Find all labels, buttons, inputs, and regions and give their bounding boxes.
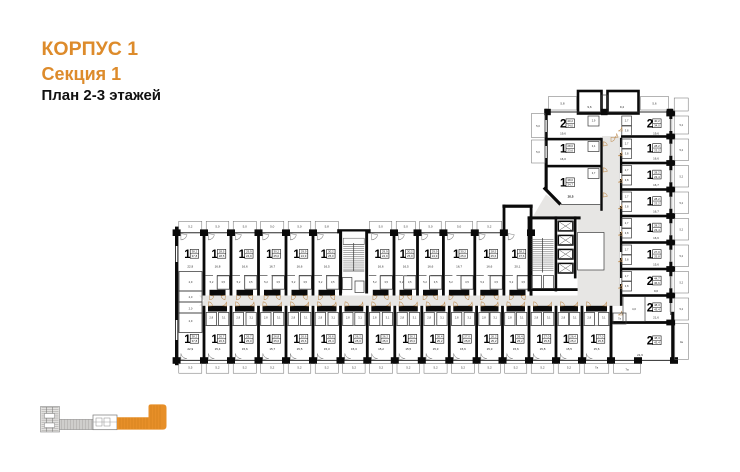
svg-text:26,6: 26,6 xyxy=(219,339,225,343)
svg-text:15,6: 15,6 xyxy=(242,347,248,351)
svg-text:3,5: 3,5 xyxy=(221,280,225,284)
svg-text:22,9: 22,9 xyxy=(187,264,193,268)
svg-text:2: 2 xyxy=(647,303,653,315)
svg-text:План 2-3 этажей: План 2-3 этажей xyxy=(42,87,162,104)
svg-text:2,8: 2,8 xyxy=(291,316,295,320)
svg-text:2,8: 2,8 xyxy=(482,316,486,320)
svg-text:2,8: 2,8 xyxy=(455,316,459,320)
svg-text:3,1: 3,1 xyxy=(222,316,226,320)
svg-text:15,8: 15,8 xyxy=(540,347,546,351)
svg-text:3,1: 3,1 xyxy=(413,316,417,320)
svg-text:3,8: 3,8 xyxy=(625,129,629,133)
svg-text:4,0: 4,0 xyxy=(632,307,636,311)
svg-text:36,6: 36,6 xyxy=(654,281,660,285)
svg-text:28,2: 28,2 xyxy=(654,170,660,174)
svg-text:23,4: 23,4 xyxy=(654,175,660,179)
svg-text:25,4: 25,4 xyxy=(328,339,334,343)
svg-text:40,2: 40,2 xyxy=(654,119,660,123)
svg-text:9,6: 9,6 xyxy=(587,105,592,109)
svg-text:27,0: 27,0 xyxy=(598,335,604,339)
svg-text:19,6: 19,6 xyxy=(560,132,566,136)
svg-text:3,1: 3,1 xyxy=(386,316,390,320)
svg-text:16,6: 16,6 xyxy=(297,264,303,268)
svg-text:2,7: 2,7 xyxy=(625,195,629,199)
svg-text:16,6: 16,6 xyxy=(653,236,659,240)
svg-text:28,2: 28,2 xyxy=(654,223,660,227)
svg-text:28,5: 28,5 xyxy=(219,254,225,258)
svg-text:27,0: 27,0 xyxy=(544,335,550,339)
svg-text:2,8: 2,8 xyxy=(534,316,538,320)
svg-text:26,6: 26,6 xyxy=(328,335,334,339)
svg-text:2: 2 xyxy=(647,276,653,288)
svg-text:15,2: 15,2 xyxy=(378,347,384,351)
svg-text:9,4: 9,4 xyxy=(620,105,625,109)
svg-text:9,6: 9,6 xyxy=(654,289,658,293)
svg-text:15,3: 15,3 xyxy=(487,347,493,351)
svg-text:38,2: 38,2 xyxy=(192,250,198,254)
svg-text:19,6: 19,6 xyxy=(653,132,659,136)
svg-text:2,0: 2,0 xyxy=(189,295,193,299)
svg-text:44,7: 44,7 xyxy=(654,276,660,280)
svg-text:2,7: 2,7 xyxy=(625,221,629,225)
svg-text:29,9: 29,9 xyxy=(382,250,388,254)
svg-text:28,2: 28,2 xyxy=(654,144,660,148)
svg-text:5,2: 5,2 xyxy=(210,280,214,284)
svg-text:25,2: 25,2 xyxy=(570,339,576,343)
svg-text:29,9: 29,9 xyxy=(432,250,438,254)
svg-text:16,7: 16,7 xyxy=(653,209,659,213)
svg-text:5,0: 5,0 xyxy=(215,225,220,229)
svg-text:2,7: 2,7 xyxy=(625,248,629,252)
svg-text:2,8: 2,8 xyxy=(373,316,377,320)
svg-text:15,3: 15,3 xyxy=(433,347,439,351)
svg-text:23,4: 23,4 xyxy=(654,228,660,232)
svg-text:2,8: 2,8 xyxy=(236,316,240,320)
svg-text:3,8: 3,8 xyxy=(625,231,629,235)
svg-text:26,4: 26,4 xyxy=(570,335,576,339)
svg-text:5,2: 5,2 xyxy=(487,366,492,370)
svg-text:25,2: 25,2 xyxy=(437,339,443,343)
svg-text:2,7: 2,7 xyxy=(625,142,629,146)
svg-text:25,8: 25,8 xyxy=(544,339,550,343)
svg-text:16,6: 16,6 xyxy=(378,264,384,268)
svg-text:2,9: 2,9 xyxy=(189,319,193,323)
svg-text:5,2: 5,2 xyxy=(297,366,302,370)
svg-text:5,2: 5,2 xyxy=(567,366,572,370)
svg-text:25,0: 25,0 xyxy=(460,254,466,258)
svg-text:26,2: 26,2 xyxy=(355,335,361,339)
svg-text:5,5: 5,5 xyxy=(188,366,193,370)
svg-text:25,0: 25,0 xyxy=(382,339,388,343)
svg-text:48,3: 48,3 xyxy=(654,303,660,307)
svg-text:2,9: 2,9 xyxy=(592,119,596,123)
svg-text:5,6: 5,6 xyxy=(652,102,657,106)
svg-text:3,1: 3,1 xyxy=(493,316,497,320)
svg-text:16,5: 16,5 xyxy=(324,264,330,268)
svg-text:5,2: 5,2 xyxy=(679,148,683,152)
svg-text:5,0: 5,0 xyxy=(404,225,409,229)
svg-text:25,8: 25,8 xyxy=(654,254,660,258)
svg-text:5,2: 5,2 xyxy=(679,174,683,178)
svg-text:15,3: 15,3 xyxy=(351,347,357,351)
svg-text:3,5: 3,5 xyxy=(384,280,388,284)
svg-text:3,5: 3,5 xyxy=(303,280,307,284)
svg-text:5,2: 5,2 xyxy=(433,366,438,370)
svg-text:34,7: 34,7 xyxy=(567,183,573,187)
svg-text:25,0: 25,0 xyxy=(410,339,416,343)
svg-text:3,1: 3,1 xyxy=(304,316,308,320)
svg-text:3,8: 3,8 xyxy=(625,178,629,182)
svg-text:3,1: 3,1 xyxy=(331,316,335,320)
svg-text:15,7: 15,7 xyxy=(269,347,275,351)
svg-text:26,8: 26,8 xyxy=(274,335,280,339)
svg-text:5,2: 5,2 xyxy=(188,225,193,229)
svg-text:30,2: 30,2 xyxy=(407,250,413,254)
svg-text:2,7: 2,7 xyxy=(625,168,629,172)
svg-text:38,2: 38,2 xyxy=(519,250,525,254)
svg-text:25,0: 25,0 xyxy=(355,339,361,343)
svg-text:3,5: 3,5 xyxy=(249,280,253,284)
svg-text:5,2: 5,2 xyxy=(679,227,683,231)
svg-text:25,8: 25,8 xyxy=(598,339,604,343)
svg-text:26,4: 26,4 xyxy=(437,335,443,339)
svg-text:28,2: 28,2 xyxy=(654,197,660,201)
svg-text:3,5: 3,5 xyxy=(276,280,280,284)
svg-text:16,6: 16,6 xyxy=(428,264,434,268)
svg-text:5,2: 5,2 xyxy=(480,280,484,284)
svg-text:5,2: 5,2 xyxy=(461,366,466,370)
svg-text:5,2: 5,2 xyxy=(449,280,453,284)
svg-text:5,2: 5,2 xyxy=(514,366,519,370)
svg-text:25,6: 25,6 xyxy=(274,339,280,343)
svg-text:24,9: 24,9 xyxy=(432,254,438,258)
svg-text:3,1: 3,1 xyxy=(277,316,281,320)
svg-text:15,6: 15,6 xyxy=(513,347,519,351)
svg-text:37,8: 37,8 xyxy=(192,254,198,258)
svg-text:30,2: 30,2 xyxy=(328,250,334,254)
svg-text:40,2: 40,2 xyxy=(567,119,573,123)
svg-text:5,2: 5,2 xyxy=(292,280,296,284)
svg-text:2,8: 2,8 xyxy=(209,316,213,320)
svg-text:3,7: 3,7 xyxy=(592,171,596,175)
svg-text:Секция 1: Секция 1 xyxy=(42,64,122,84)
svg-text:20,3: 20,3 xyxy=(568,195,574,199)
svg-text:34,0: 34,0 xyxy=(654,124,660,128)
svg-text:5,2: 5,2 xyxy=(270,366,275,370)
svg-text:2,9: 2,9 xyxy=(189,280,193,284)
svg-text:26,2: 26,2 xyxy=(382,335,388,339)
svg-text:3,1: 3,1 xyxy=(467,316,471,320)
svg-text:5,2: 5,2 xyxy=(264,280,268,284)
svg-text:28,5: 28,5 xyxy=(219,250,225,254)
svg-text:25,0: 25,0 xyxy=(274,254,280,258)
svg-text:2,8: 2,8 xyxy=(561,316,565,320)
svg-text:5,0: 5,0 xyxy=(457,225,462,229)
svg-text:2: 2 xyxy=(647,119,653,131)
svg-text:5,0: 5,0 xyxy=(243,225,248,229)
svg-text:3,1: 3,1 xyxy=(602,316,606,320)
svg-text:23,2: 23,2 xyxy=(654,148,660,152)
svg-text:22,9: 22,9 xyxy=(187,347,193,351)
svg-text:5,2: 5,2 xyxy=(400,280,404,284)
svg-text:26,2: 26,2 xyxy=(410,335,416,339)
svg-text:5,2: 5,2 xyxy=(423,280,427,284)
svg-text:2: 2 xyxy=(647,336,653,348)
svg-text:2,7: 2,7 xyxy=(625,274,629,278)
svg-text:5,8: 5,8 xyxy=(325,225,330,229)
svg-text:26,2: 26,2 xyxy=(491,335,497,339)
svg-text:15,6: 15,6 xyxy=(653,262,659,266)
svg-text:43,4: 43,4 xyxy=(654,341,660,345)
svg-text:25,0: 25,0 xyxy=(246,339,252,343)
svg-text:3,5: 3,5 xyxy=(521,280,525,284)
svg-text:3,5: 3,5 xyxy=(331,280,335,284)
svg-text:15,6: 15,6 xyxy=(594,347,600,351)
svg-text:34,0: 34,0 xyxy=(567,124,573,128)
svg-text:2,8: 2,8 xyxy=(318,316,322,320)
svg-text:3,1: 3,1 xyxy=(440,316,444,320)
svg-text:5,0: 5,0 xyxy=(536,124,540,128)
svg-text:3,5: 3,5 xyxy=(465,280,469,284)
svg-text:5,0: 5,0 xyxy=(270,225,275,229)
svg-text:37,6: 37,6 xyxy=(519,254,525,258)
svg-text:2,8: 2,8 xyxy=(346,316,350,320)
svg-text:3,8: 3,8 xyxy=(625,284,629,288)
svg-text:23,6: 23,6 xyxy=(567,149,573,153)
svg-text:16,8: 16,8 xyxy=(215,264,221,268)
svg-text:5,2: 5,2 xyxy=(406,366,411,370)
svg-text:5,2: 5,2 xyxy=(352,366,357,370)
svg-text:25,2: 25,2 xyxy=(491,339,497,343)
svg-text:24,9: 24,9 xyxy=(301,254,307,258)
svg-text:16,6: 16,6 xyxy=(653,156,659,160)
svg-text:37,8: 37,8 xyxy=(192,339,198,343)
svg-text:3,8: 3,8 xyxy=(625,152,629,156)
svg-text:5,2: 5,2 xyxy=(679,307,683,311)
svg-text:5,2: 5,2 xyxy=(679,123,683,127)
svg-text:КОРПУС 1: КОРПУС 1 xyxy=(42,38,139,60)
svg-text:2,8: 2,8 xyxy=(508,316,512,320)
svg-text:25,8: 25,8 xyxy=(464,339,470,343)
svg-text:16,6: 16,6 xyxy=(242,264,248,268)
svg-text:15,5: 15,5 xyxy=(405,347,411,351)
svg-text:21,6: 21,6 xyxy=(637,353,643,357)
svg-text:26,6: 26,6 xyxy=(301,335,307,339)
svg-text:38,0: 38,0 xyxy=(567,178,573,182)
svg-text:26,4: 26,4 xyxy=(517,335,523,339)
svg-text:16,0: 16,0 xyxy=(560,157,566,161)
svg-text:3,1: 3,1 xyxy=(547,316,551,320)
svg-text:3,1: 3,1 xyxy=(358,316,362,320)
svg-text:2,8: 2,8 xyxy=(400,316,404,320)
svg-text:3,8: 3,8 xyxy=(625,205,629,209)
svg-text:5,0: 5,0 xyxy=(536,150,540,154)
svg-text:7a: 7a xyxy=(625,367,629,371)
svg-text:24,9: 24,9 xyxy=(246,254,252,258)
svg-text:15,5: 15,5 xyxy=(297,347,303,351)
svg-text:5,2: 5,2 xyxy=(679,254,683,258)
svg-text:5,2: 5,2 xyxy=(325,366,330,370)
svg-text:15,5: 15,5 xyxy=(566,347,572,351)
svg-text:5,0: 5,0 xyxy=(428,225,433,229)
svg-text:27,0: 27,0 xyxy=(654,250,660,254)
svg-text:20,1: 20,1 xyxy=(515,264,521,268)
svg-text:3,5: 3,5 xyxy=(494,280,498,284)
svg-text:5,8: 5,8 xyxy=(560,102,565,106)
svg-text:16,7: 16,7 xyxy=(269,264,275,268)
svg-text:3,5: 3,5 xyxy=(434,280,438,284)
svg-text:26,7: 26,7 xyxy=(246,335,252,339)
svg-text:5,2: 5,2 xyxy=(373,280,377,284)
svg-text:16,6: 16,6 xyxy=(486,264,492,268)
svg-text:5,0: 5,0 xyxy=(297,225,302,229)
svg-text:3,1: 3,1 xyxy=(520,316,524,320)
svg-text:3,5: 3,5 xyxy=(408,280,412,284)
svg-text:3,1: 3,1 xyxy=(573,316,577,320)
svg-text:2,8: 2,8 xyxy=(587,316,591,320)
svg-text:21,6: 21,6 xyxy=(653,316,659,320)
svg-text:5,2: 5,2 xyxy=(379,366,384,370)
svg-text:25,0: 25,0 xyxy=(328,254,334,258)
svg-text:28,5: 28,5 xyxy=(491,250,497,254)
svg-text:38,2: 38,2 xyxy=(192,335,198,339)
svg-text:48,3: 48,3 xyxy=(654,336,660,340)
svg-text:25,2: 25,2 xyxy=(517,339,523,343)
svg-text:15,4: 15,4 xyxy=(215,347,221,351)
svg-text:2: 2 xyxy=(560,119,566,131)
svg-text:5,2: 5,2 xyxy=(319,280,323,284)
svg-text:28,0: 28,0 xyxy=(567,144,573,148)
svg-text:16,5: 16,5 xyxy=(403,264,409,268)
svg-text:5,2: 5,2 xyxy=(679,201,683,205)
svg-text:29,9: 29,9 xyxy=(246,250,252,254)
svg-text:5,2: 5,2 xyxy=(540,366,545,370)
svg-text:3,4: 3,4 xyxy=(592,144,596,148)
svg-text:30,2: 30,2 xyxy=(460,250,466,254)
svg-text:25,6: 25,6 xyxy=(301,339,307,343)
svg-text:5,0: 5,0 xyxy=(379,225,384,229)
svg-text:5,2: 5,2 xyxy=(487,225,492,229)
svg-text:5,2: 5,2 xyxy=(510,280,514,284)
svg-text:16,7: 16,7 xyxy=(456,264,462,268)
svg-text:5,2: 5,2 xyxy=(243,366,248,370)
svg-text:7a: 7a xyxy=(595,366,599,370)
svg-text:2,0: 2,0 xyxy=(189,307,193,311)
svg-text:27,0: 27,0 xyxy=(464,335,470,339)
svg-text:3,8: 3,8 xyxy=(625,258,629,262)
svg-text:30,2: 30,2 xyxy=(274,250,280,254)
svg-text:15,3: 15,3 xyxy=(324,347,330,351)
svg-text:24,9: 24,9 xyxy=(382,254,388,258)
svg-text:2,7: 2,7 xyxy=(625,119,629,123)
svg-text:3,1: 3,1 xyxy=(249,316,253,320)
svg-text:23,2: 23,2 xyxy=(654,201,660,205)
svg-text:2,8: 2,8 xyxy=(264,316,268,320)
svg-text:25,0: 25,0 xyxy=(407,254,413,258)
svg-text:29,9: 29,9 xyxy=(301,250,307,254)
svg-text:5,2: 5,2 xyxy=(215,366,220,370)
svg-text:16,7: 16,7 xyxy=(653,183,659,187)
svg-text:5,2: 5,2 xyxy=(237,280,241,284)
svg-text:2,8: 2,8 xyxy=(427,316,431,320)
svg-text:25,6: 25,6 xyxy=(491,254,497,258)
svg-text:5,2: 5,2 xyxy=(679,280,683,284)
svg-text:43,4: 43,4 xyxy=(654,308,660,312)
svg-text:26,7: 26,7 xyxy=(219,335,225,339)
svg-text:15,6: 15,6 xyxy=(460,347,466,351)
